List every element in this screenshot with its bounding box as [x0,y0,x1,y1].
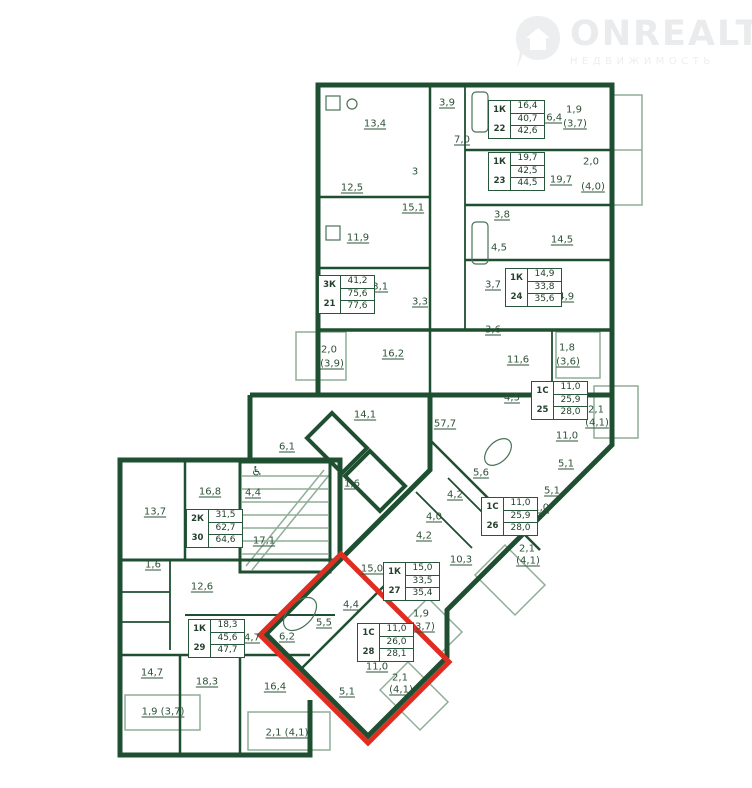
room-area-label: 13,7 [144,507,166,518]
apartment-area-value: 47,7 [211,645,244,657]
apartment-number: 25 [537,405,549,415]
apartment-number: 21 [324,299,336,309]
apartment-number: 22 [494,124,506,134]
room-area-label: 3,9 [439,98,455,109]
room-area-label: 2,1 [392,673,408,684]
room-area-label: 17,1 [253,536,275,547]
room-area-label: 7,0 [454,135,470,146]
apartment-area-value: 44,5 [511,178,544,190]
apartment-type: 1К [493,157,506,167]
apartment-number: 29 [194,643,206,653]
apartment-area-value: 45,6 [211,633,244,646]
apartment-area-value: 62,7 [209,523,242,536]
apartment-table-28: 1С2811,026,028,1 [357,623,414,662]
room-area-label: 1,6 [145,560,161,571]
room-area-label: 10,3 [450,555,472,566]
apartment-area-value: 15,0 [406,563,439,576]
apartment-number: 23 [494,176,506,186]
apartment-area-value: 35,6 [528,294,561,306]
room-area-label: 1,9 [566,105,582,116]
apartment-area-value: 31,5 [209,510,242,523]
apartment-area-value: 11,0 [504,498,537,511]
apartment-number: 24 [511,292,523,302]
room-area-label: 2,1 [588,405,604,416]
room-area-label: 4,5 [491,243,507,254]
room-area-label: 11,0 [556,431,578,442]
room-area-label: 6,2 [279,632,295,643]
room-area-label: 3,8 [494,210,510,221]
room-area-label: 1,6 [344,479,360,490]
apartment-type: 1К [193,624,206,634]
room-area-label: 1,9 [413,609,429,620]
room-area-label: (4,1) [585,418,609,429]
room-area-label: 4,4 [343,600,359,611]
room-area-label: 14,5 [551,235,573,246]
apartment-area-value: 33,5 [406,576,439,589]
room-area-label: 4,4 [245,488,261,499]
room-area-label: 15,0 [361,564,383,575]
apartment-type: 1С [362,628,374,638]
apartment-area-value: 26,0 [380,637,413,650]
room-area-label: 57,7 [434,419,456,430]
apartment-area-value: 77,6 [341,301,374,313]
apartment-type: 3К [323,280,336,290]
room-area-label: (4,1) [516,556,540,567]
apartment-area-value: 25,9 [554,395,587,408]
apartment-table-26: 1С2611,025,928,0 [481,497,538,536]
room-area-label: 11,6 [507,355,529,366]
room-area-label: 11,0 [366,662,388,673]
apartment-type: 2К [191,514,204,524]
apartment-area-value: 40,7 [511,114,544,127]
room-area-label: 4,5 [504,393,520,404]
room-area-label: 2,1 (4,1) [266,728,309,739]
room-area-label: 2,0 [321,345,337,356]
room-area-label: (3,9) [320,359,344,370]
apartment-type: 1С [536,386,548,396]
room-area-label: 18,3 [196,677,218,688]
apartment-area-value: 42,5 [511,166,544,179]
room-area-label: 16,8 [199,487,221,498]
apartment-area-value: 11,0 [380,624,413,637]
apartment-table-27: 1К2715,033,535,4 [383,562,440,601]
room-area-label: 3,3 [412,297,428,308]
room-area-label: 3,7 [485,280,501,291]
apartment-table-21: 3К2141,275,677,6 [318,275,375,314]
room-area-label: 12,6 [191,582,213,593]
apartment-table-25: 1С2511,025,928,0 [531,381,588,420]
room-area-label: (3,7) [411,622,435,633]
room-area-label: (3,6) [556,357,580,368]
room-area-label: 6,1 [279,442,295,453]
room-area-label: 3 [412,167,418,178]
room-area-label: 2,1 [519,544,535,555]
room-area-label: 5,5 [316,618,332,629]
apartment-area-value: 75,6 [341,289,374,302]
apartment-table-29: 1К2918,345,647,7 [188,619,245,658]
apartment-type: 1К [493,105,506,115]
room-area-label: 5,1 [339,687,355,698]
apartment-area-value: 28,0 [504,523,537,535]
room-area-label: 4,7 [244,633,260,644]
room-area-label: 5,1 [558,459,574,470]
room-area-label: 16,4 [264,682,286,693]
apartment-area-value: 25,9 [504,511,537,524]
room-area-label: 13,4 [364,119,386,130]
room-area-label: 1,8 [559,343,575,354]
apartment-table-23: 1К2319,742,544,5 [488,152,545,191]
room-area-label: 14,1 [354,410,376,421]
room-area-label: 5,6 [473,468,489,479]
room-area-label: 4,0 [426,512,442,523]
room-area-label: 5,1 [544,486,560,497]
room-area-label: 4,2 [447,490,463,501]
apartment-area-value: 35,4 [406,588,439,600]
apartment-area-value: 16,4 [511,101,544,114]
apartment-area-value: 18,3 [211,620,244,633]
apartment-area-value: 14,9 [528,269,561,282]
apartment-area-value: 28,0 [554,407,587,419]
wheelchair-icon: ♿ [251,465,263,480]
apartment-table-24: 1К2414,933,835,6 [505,268,562,307]
room-area-label: (4,1) [389,685,413,696]
apartment-table-22: 1К2216,440,742,6 [488,100,545,139]
apartment-area-value: 64,6 [209,535,242,547]
apartment-area-value: 11,0 [554,382,587,395]
apartment-area-value: 19,7 [511,153,544,166]
room-area-label: 15,1 [402,203,424,214]
room-area-label: (4,0) [581,182,605,193]
floorplan-page: ONREALT НЕДВИЖИМОСТЬ [0,0,752,788]
apartment-type: 1С [486,502,498,512]
room-area-label: 19,7 [550,175,572,186]
apartment-type: 1К [388,567,401,577]
apartment-area-value: 41,2 [341,276,374,289]
apartment-type: 1К [510,273,523,283]
bath-kitchen-fixtures [277,92,516,637]
apartment-number: 28 [363,647,375,657]
room-area-label: 1,9 (3,7) [142,707,185,718]
apartment-table-30: 2К3031,562,764,6 [186,509,243,548]
room-area-label: 11,9 [347,233,369,244]
apartment-area-value: 28,1 [380,649,413,661]
apartment-number: 27 [389,586,401,596]
room-area-label: 12,5 [341,183,363,194]
room-area-label: 3,6 [485,325,501,336]
apartment-area-value: 42,6 [511,126,544,138]
room-area-label: 4,2 [416,531,432,542]
apartment-number: 26 [487,521,499,531]
room-area-label: 14,7 [141,668,163,679]
apartment-area-value: 33,8 [528,282,561,295]
room-area-label: (3,7) [563,119,587,130]
room-area-label: 16,2 [382,349,404,360]
apartment-number: 30 [192,533,204,543]
room-area-label: 2,0 [583,157,599,168]
